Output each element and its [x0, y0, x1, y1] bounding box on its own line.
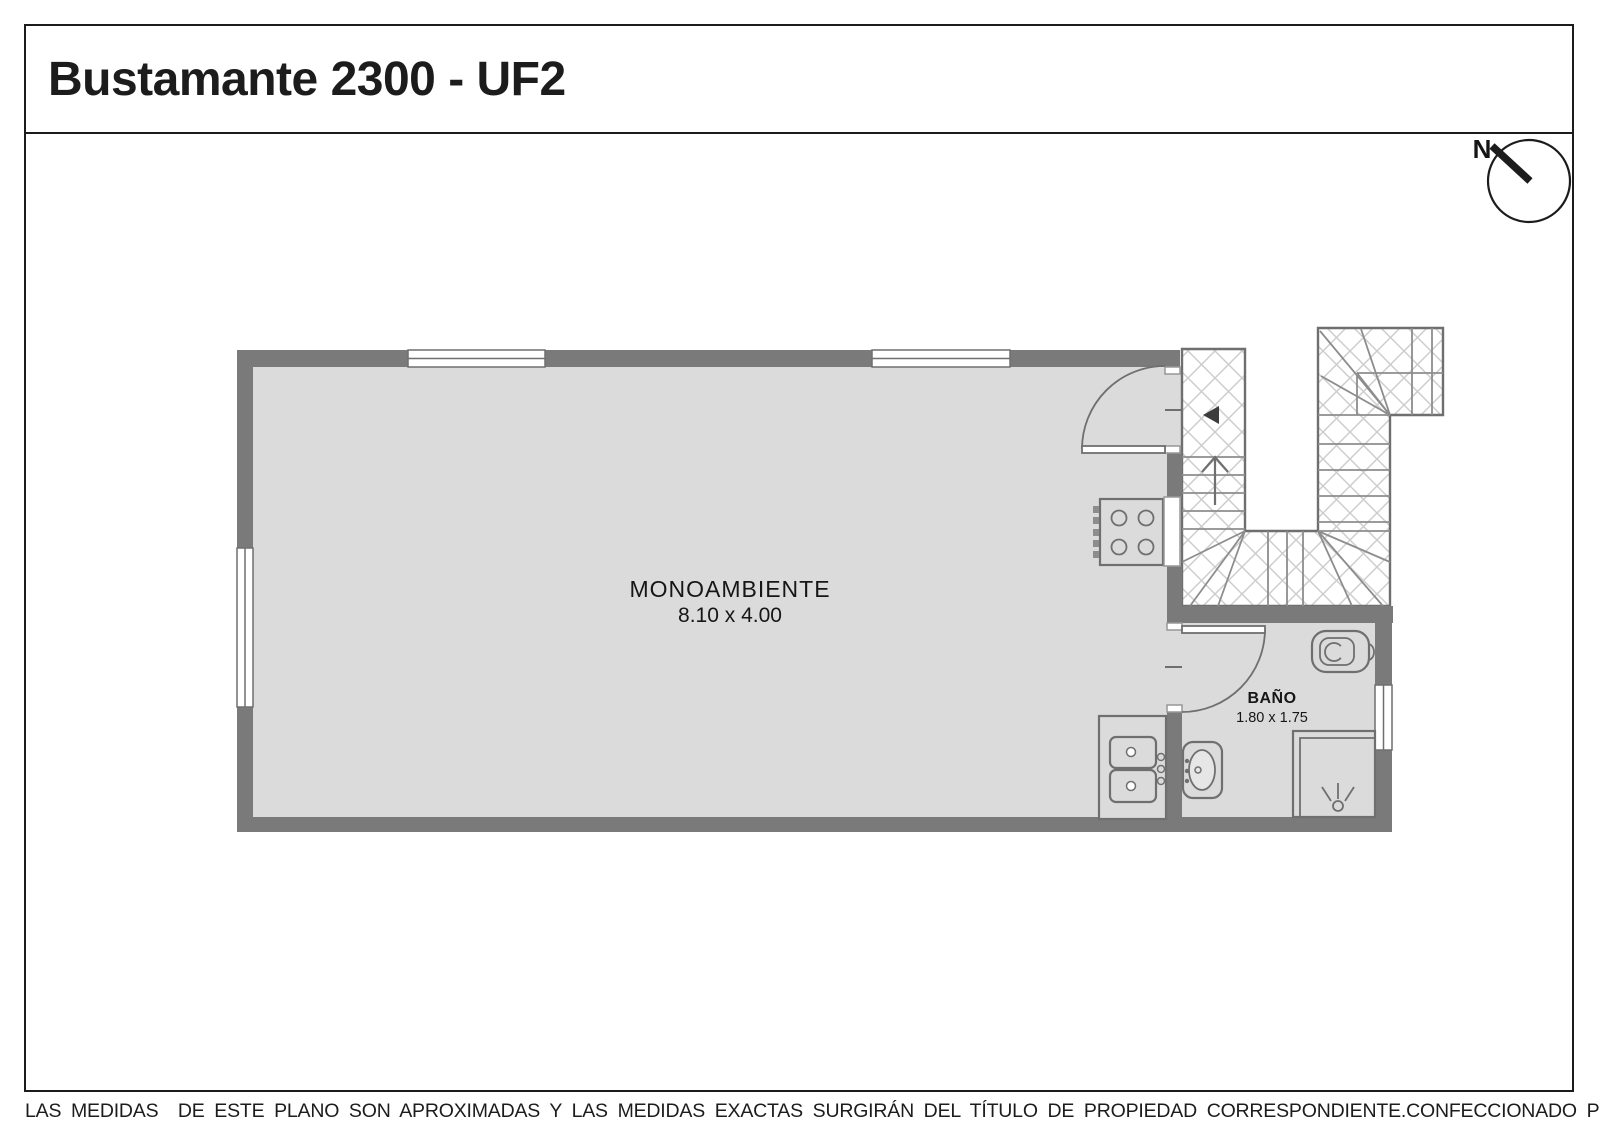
wall-bottom [237, 817, 1392, 832]
toilet [1312, 631, 1374, 672]
main-room-dimensions: 8.10 x 4.00 [678, 604, 782, 627]
window-bathroom [1375, 685, 1392, 750]
wall-right-b [1167, 566, 1182, 610]
floor-plan-canvas: N [0, 0, 1600, 1130]
footer-disclaimer: LAS MEDIDAS DE ESTE PLANO SON APROXIMADA… [25, 1100, 1406, 1123]
main-room-name: MONOAMBIENTE [629, 576, 830, 602]
compass-north-label: N [1473, 134, 1492, 164]
window-left [237, 548, 253, 707]
stove [1093, 499, 1163, 565]
shower [1293, 731, 1375, 817]
wall-stair-bath [1167, 606, 1393, 623]
bathroom-name: BAÑO [1247, 687, 1296, 707]
kitchen-counter [1099, 716, 1166, 819]
wall-top [237, 350, 1180, 367]
footer-credit: CONFECCIONADO POR ESTUDIO NARTEX [1406, 1100, 1600, 1123]
north-compass: N [1473, 134, 1570, 222]
staircase [1182, 328, 1443, 606]
bathroom-sink [1183, 742, 1222, 798]
entry-opening-floor [1167, 369, 1182, 454]
bathroom-dimensions: 1.80 x 1.75 [1236, 710, 1308, 726]
wall-right-c [1167, 711, 1182, 817]
window-top-2 [872, 350, 1010, 367]
footer: LAS MEDIDAS DE ESTE PLANO SON APROXIMADA… [25, 1100, 1532, 1123]
window-top-1 [408, 350, 545, 367]
stove-wall-opening [1164, 497, 1180, 566]
wall-right-a [1167, 450, 1182, 497]
